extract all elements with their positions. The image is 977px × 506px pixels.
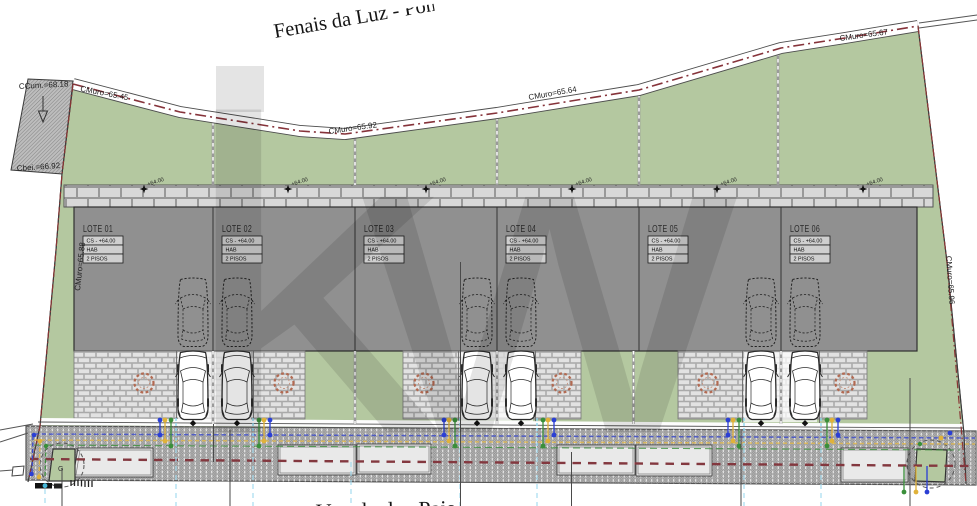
- svg-text:2 PISOS: 2 PISOS: [794, 257, 815, 263]
- svg-text:LOTE 01: LOTE 01: [83, 223, 113, 235]
- svg-text:CS - +64.00: CS - +64.00: [794, 239, 823, 245]
- svg-text:G: G: [58, 466, 63, 473]
- svg-text:HAB: HAB: [794, 248, 805, 254]
- svg-text:w: w: [355, 30, 742, 506]
- svg-text:HAB: HAB: [87, 248, 98, 254]
- svg-text:2 PISOS: 2 PISOS: [87, 257, 108, 263]
- svg-text:CS - +64.00: CS - +64.00: [87, 239, 116, 245]
- svg-text:LOTE 06: LOTE 06: [790, 223, 820, 235]
